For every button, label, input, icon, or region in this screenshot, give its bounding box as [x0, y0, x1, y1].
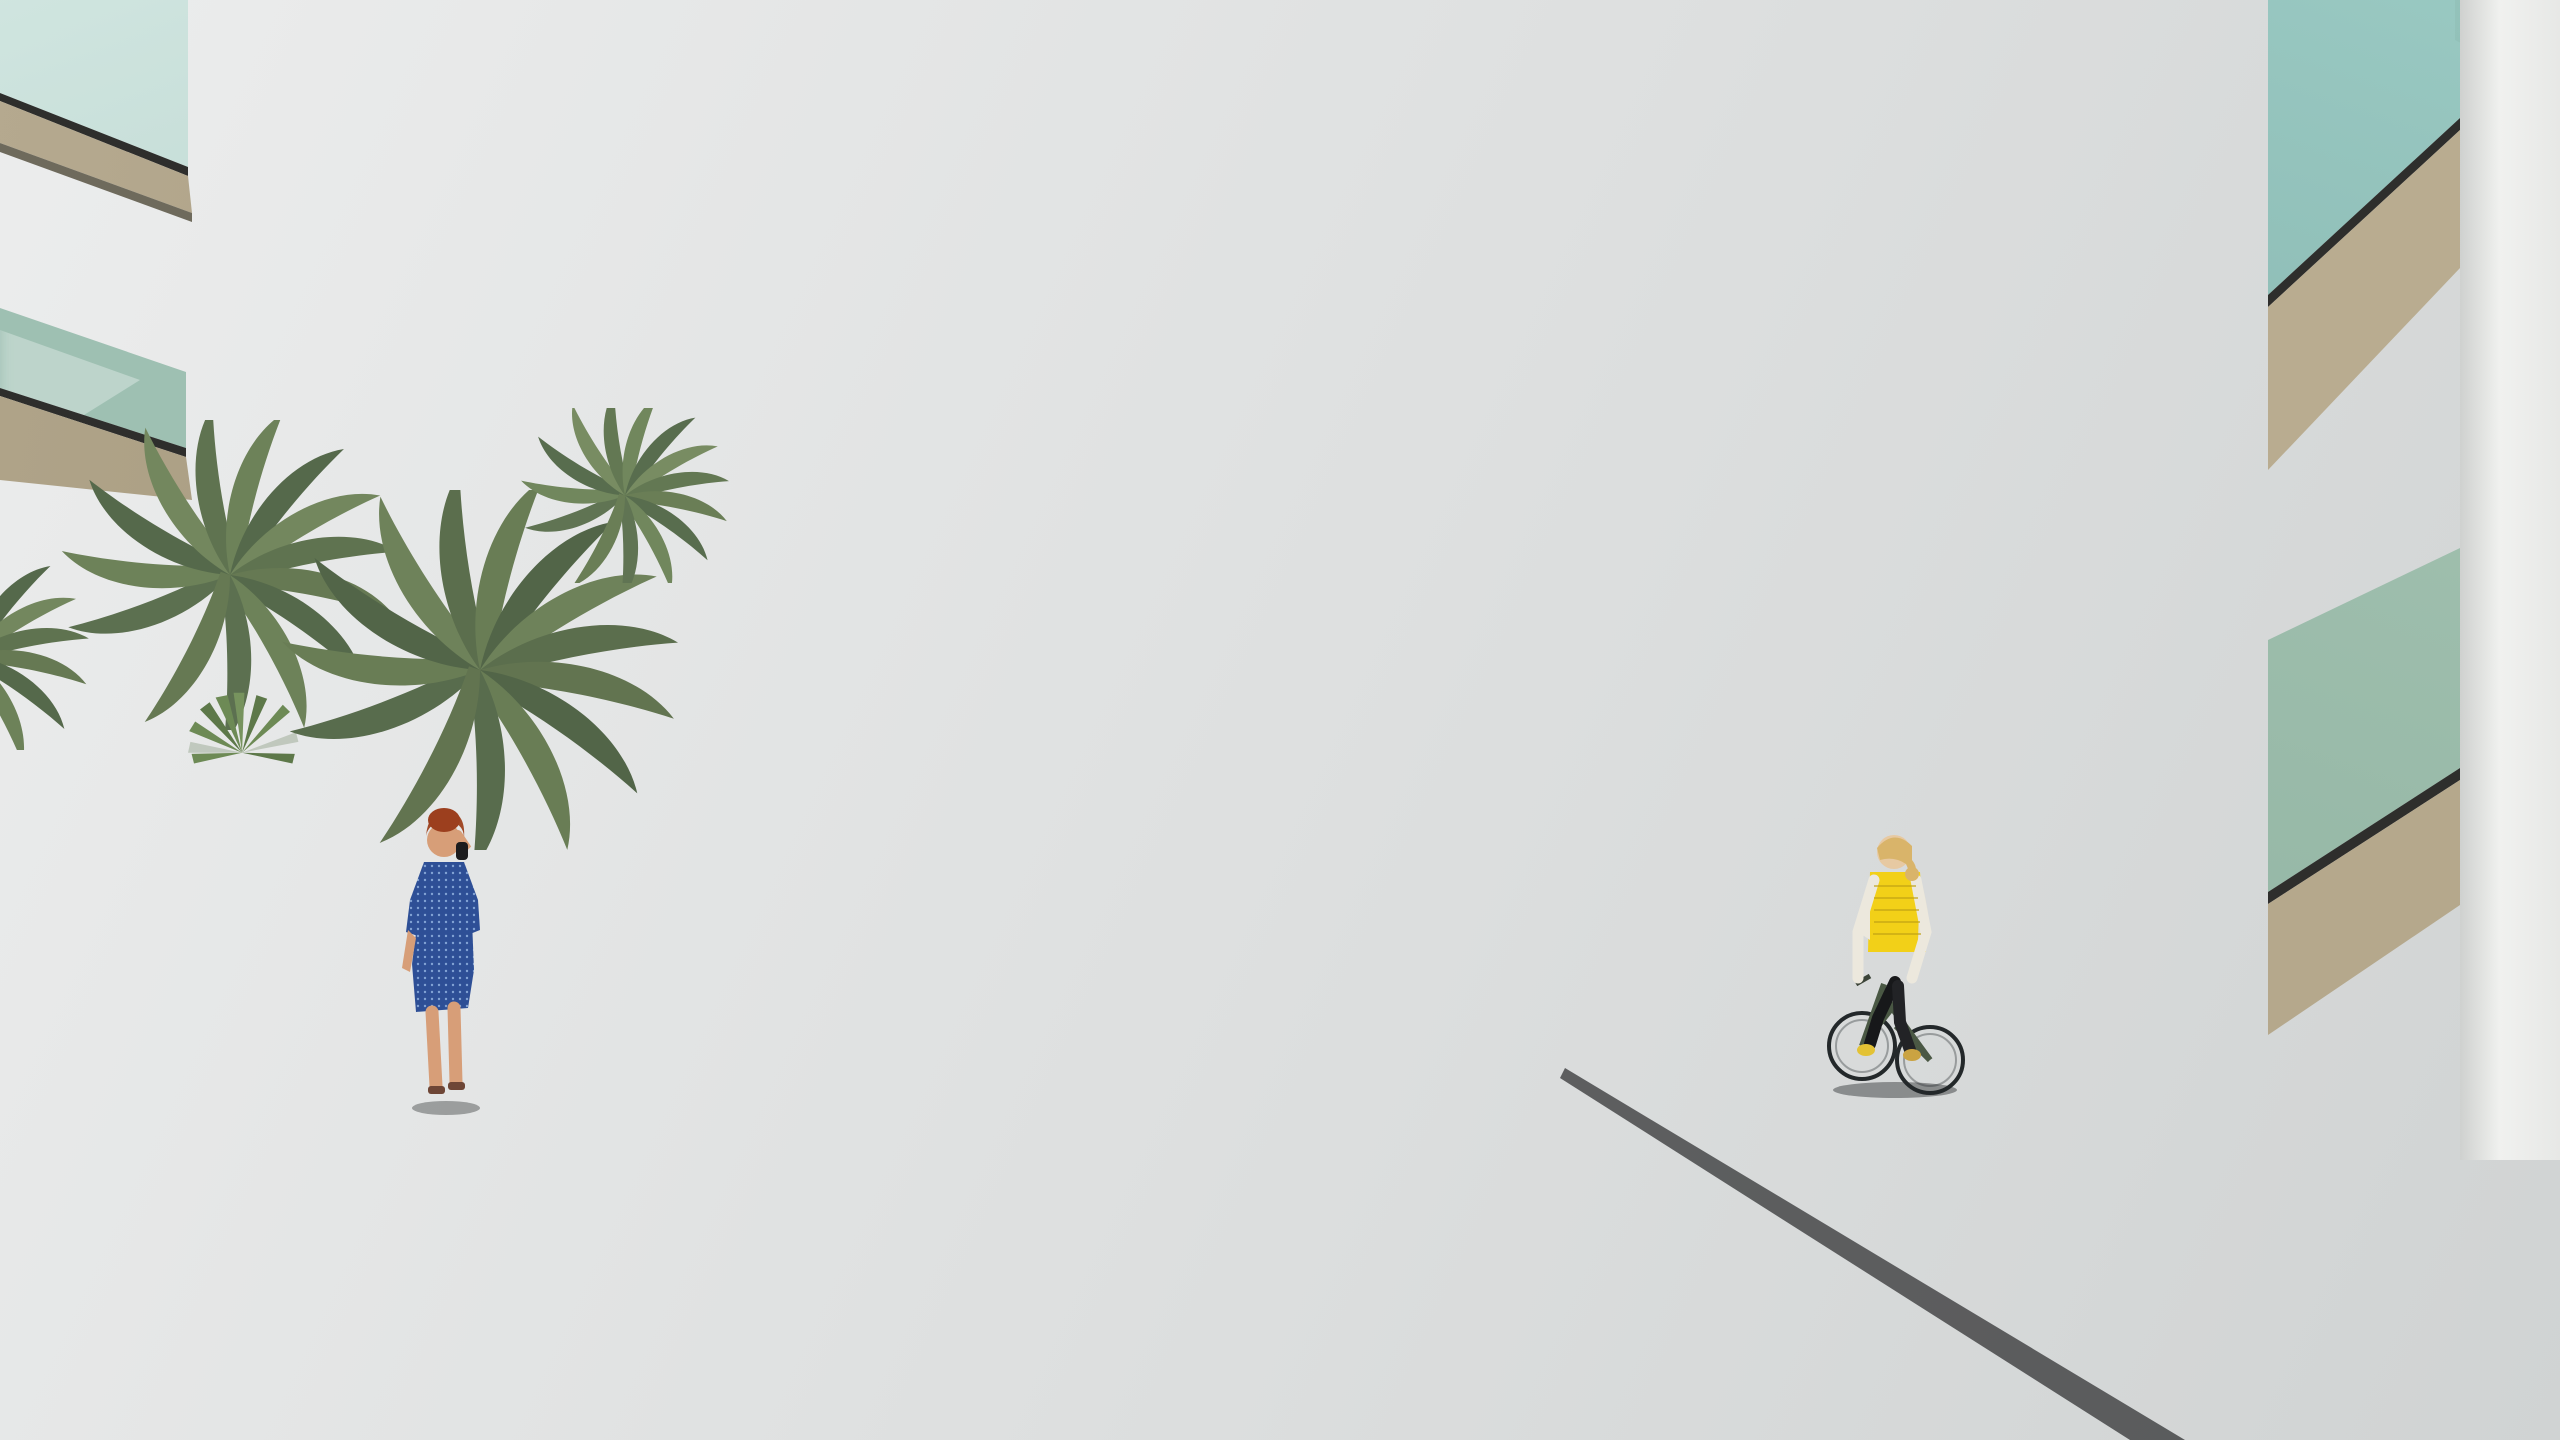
decor-shape [428, 1086, 445, 1094]
decor-shape [520, 408, 730, 583]
fan-palm-crown [182, 660, 302, 795]
fg-white-column [2460, 0, 2560, 1160]
decor-shape [0, 560, 90, 750]
decor-shape [1857, 1044, 1875, 1056]
rendered-scene [0, 0, 2560, 1440]
cyclist-yellow-vest [1800, 812, 1990, 1102]
decor-shape [1903, 1049, 1921, 1061]
decor-shape [412, 1101, 480, 1115]
decor-shape [188, 693, 298, 764]
palm-frond-edge [0, 560, 90, 750]
palm-crown [520, 408, 730, 583]
decor-shape [1905, 867, 1919, 881]
decor-shape [432, 1008, 456, 1086]
decor-shape [448, 1082, 465, 1090]
decor-shape [1898, 986, 1910, 1050]
